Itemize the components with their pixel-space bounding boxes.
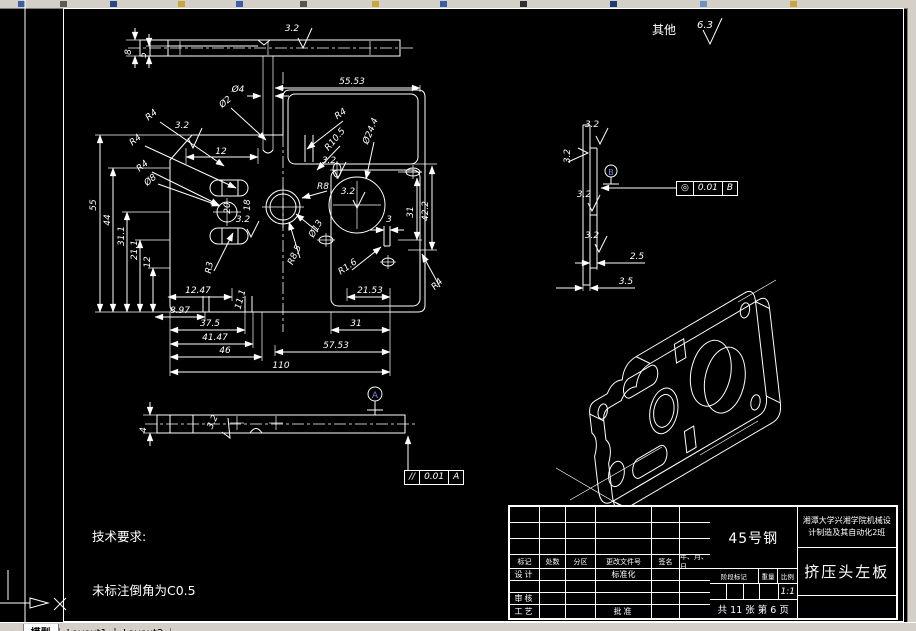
tolerance-frame-concentricity: ◎ 0.01 B <box>676 181 738 196</box>
dim-label: R8 <box>317 182 329 192</box>
col-header-zone: 分区 <box>566 555 596 569</box>
scale-value: 1:1 <box>779 584 797 599</box>
tolerance-symbol: ◎ <box>677 182 693 195</box>
dim-label: 41.47 <box>202 333 228 343</box>
datum-b-label: B <box>608 168 614 177</box>
title-block-middle: 45号钢 阶段标记 重量 比例 1:1 共 11 张 第 6 页 <box>710 507 798 618</box>
dim-label: R3 <box>204 261 216 275</box>
sheet-info: 共 11 张 第 6 页 <box>710 600 797 618</box>
dim-label: 42.2 <box>421 201 431 221</box>
dim-label: R4 <box>135 159 151 175</box>
dim-label: 3.2 <box>285 24 300 34</box>
scale-header: 比例 <box>778 569 796 583</box>
layout-tab-bar[interactable]: ◄► 模型Layout1Layout2 <box>0 622 916 631</box>
dim-labels: 其他6.3853.2Ø455.5312554431.121.112R4R4R43… <box>89 20 713 433</box>
dim-label: 21.1 <box>130 240 140 260</box>
dim-label: Ø4 <box>231 84 245 95</box>
tech-req-title: 技术要求: <box>92 528 196 546</box>
technical-requirements: 技术要求: 未标注倒角为C0.5 <box>92 492 196 631</box>
dim-label: 12 <box>143 256 153 268</box>
dim-label: 31 <box>350 319 361 329</box>
default-roughness-value: 6.3 <box>697 20 713 31</box>
organization-name: 湘潭大学兴湘学院机械设 计制造及其自动化2班 <box>798 507 896 548</box>
datum-a-label: A <box>372 391 379 401</box>
material-label: 45号钢 <box>710 507 797 569</box>
row-label-check: 审核 <box>510 593 540 605</box>
other-surfaces-label: 其他 <box>652 23 676 37</box>
dim-label: 8 <box>124 49 134 55</box>
dim-label: R4 <box>333 107 349 122</box>
dim-label: 110 <box>272 361 289 371</box>
row-label-approve: 批准 <box>596 605 652 618</box>
dim-label: 55.53 <box>339 77 365 87</box>
tolerance-frame-parallelism: // 0.01 A <box>404 470 464 485</box>
weight-header: 重量 <box>759 569 778 583</box>
dim-label: 20 <box>223 202 233 214</box>
dim-label: 3.5 <box>619 277 634 287</box>
dim-label: R1.6 <box>337 257 360 277</box>
title-block-right: 湘潭大学兴湘学院机械设 计制造及其自动化2班 挤压头左板 <box>798 507 896 618</box>
dim-label: 3.2 <box>577 190 592 200</box>
tab-model[interactable]: 模型 <box>23 624 59 631</box>
row-label-design: 设计 <box>510 569 540 581</box>
dim-label: 3.2 <box>563 149 573 164</box>
col-header-sign: 签名 <box>652 555 680 569</box>
dim-label: 12.47 <box>185 286 211 296</box>
tech-req-line: 未标注倒角为C0.5 <box>92 582 196 600</box>
dim-label: 3.2 <box>585 120 600 130</box>
col-header-docno: 更改文件号 <box>596 555 652 569</box>
dim-label: 3.2 <box>236 215 251 225</box>
tolerance-symbol: // <box>405 471 419 484</box>
col-header-count: 处数 <box>540 555 566 569</box>
dim-label: 55 <box>89 199 99 211</box>
dim-label: R10.5 <box>323 126 348 153</box>
dim-label: R4 <box>144 108 160 124</box>
tolerance-value: 0.01 <box>419 471 448 484</box>
dim-label: 4 <box>139 427 149 433</box>
part-name: 挤压头左板 <box>798 548 896 596</box>
dim-label: 46 <box>219 346 231 356</box>
dim-label: 5 <box>139 52 149 58</box>
dim-label: 31 <box>406 206 416 217</box>
dim-label: 18 <box>243 199 253 211</box>
autocad-model-space: 其他6.3853.2Ø455.5312554431.121.112R4R4R43… <box>0 0 916 631</box>
tolerance-datum: A <box>448 471 463 484</box>
dim-label: R4 <box>430 277 446 293</box>
dim-label: 3.2 <box>206 413 221 430</box>
dim-label: 21.53 <box>357 286 383 296</box>
revision-table: 标记 处数 分区 更改文件号 签名 年、月、日 设计 标准化 审核 工艺 批准 <box>510 507 710 618</box>
dim-label: 37.5 <box>200 319 220 329</box>
col-header-mark: 标记 <box>510 555 540 569</box>
title-block: 标记 处数 分区 更改文件号 签名 年、月、日 设计 标准化 审核 工艺 批准 … <box>508 505 898 620</box>
dim-label: 31.1 <box>117 226 127 246</box>
dim-label: 44 <box>103 214 113 226</box>
dim-label: 2.5 <box>630 252 645 262</box>
dim-label: 57.53 <box>323 341 349 351</box>
ucs-icon <box>0 570 48 608</box>
row-label-standardization: 标准化 <box>596 569 652 581</box>
stage-mark-header: 阶段标记 <box>710 569 759 583</box>
tolerance-value: 0.01 <box>693 182 722 195</box>
side-view <box>556 125 676 291</box>
dim-label: 11.1 <box>234 289 249 311</box>
row-label-process: 工艺 <box>510 605 540 618</box>
dim-label: 3 <box>386 215 392 225</box>
isometric-view <box>556 280 782 523</box>
col-header-date: 年、月、日 <box>680 555 710 569</box>
dim-label: 8.97 <box>170 306 190 316</box>
dim-label: 3.2 <box>341 187 356 197</box>
dim-label: 3.2 <box>175 121 190 131</box>
dim-label: 3.2 <box>322 156 337 166</box>
dim-label: R8.5 <box>286 243 304 266</box>
crosshair-cursor <box>54 598 66 610</box>
dim-label: Ø24.4 <box>360 116 381 146</box>
dim-label: 12 <box>215 147 227 157</box>
dim-label: 3.2 <box>585 231 600 241</box>
tolerance-datum: B <box>722 182 737 195</box>
vertical-scrollbar[interactable] <box>907 8 916 622</box>
